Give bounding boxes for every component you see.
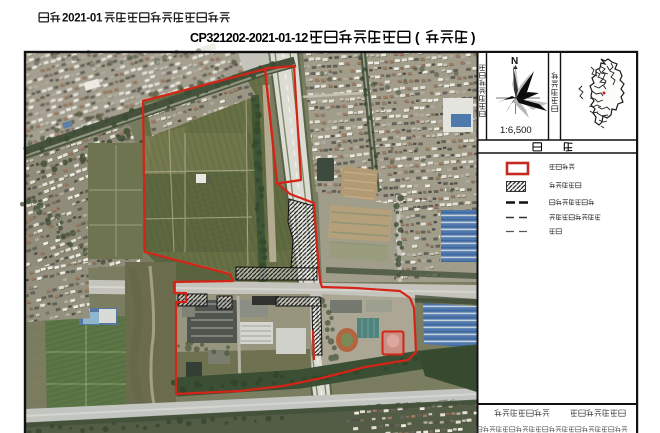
svg-text:2021-01: 2021-01 bbox=[62, 13, 103, 25]
svg-text:CP321202-2021-01-12: CP321202-2021-01-12 bbox=[190, 31, 308, 45]
svg-text:N: N bbox=[511, 56, 518, 67]
svg-text:1:6,500: 1:6,500 bbox=[500, 125, 532, 136]
svg-text:(: ( bbox=[415, 30, 420, 45]
svg-text:): ) bbox=[471, 30, 476, 45]
